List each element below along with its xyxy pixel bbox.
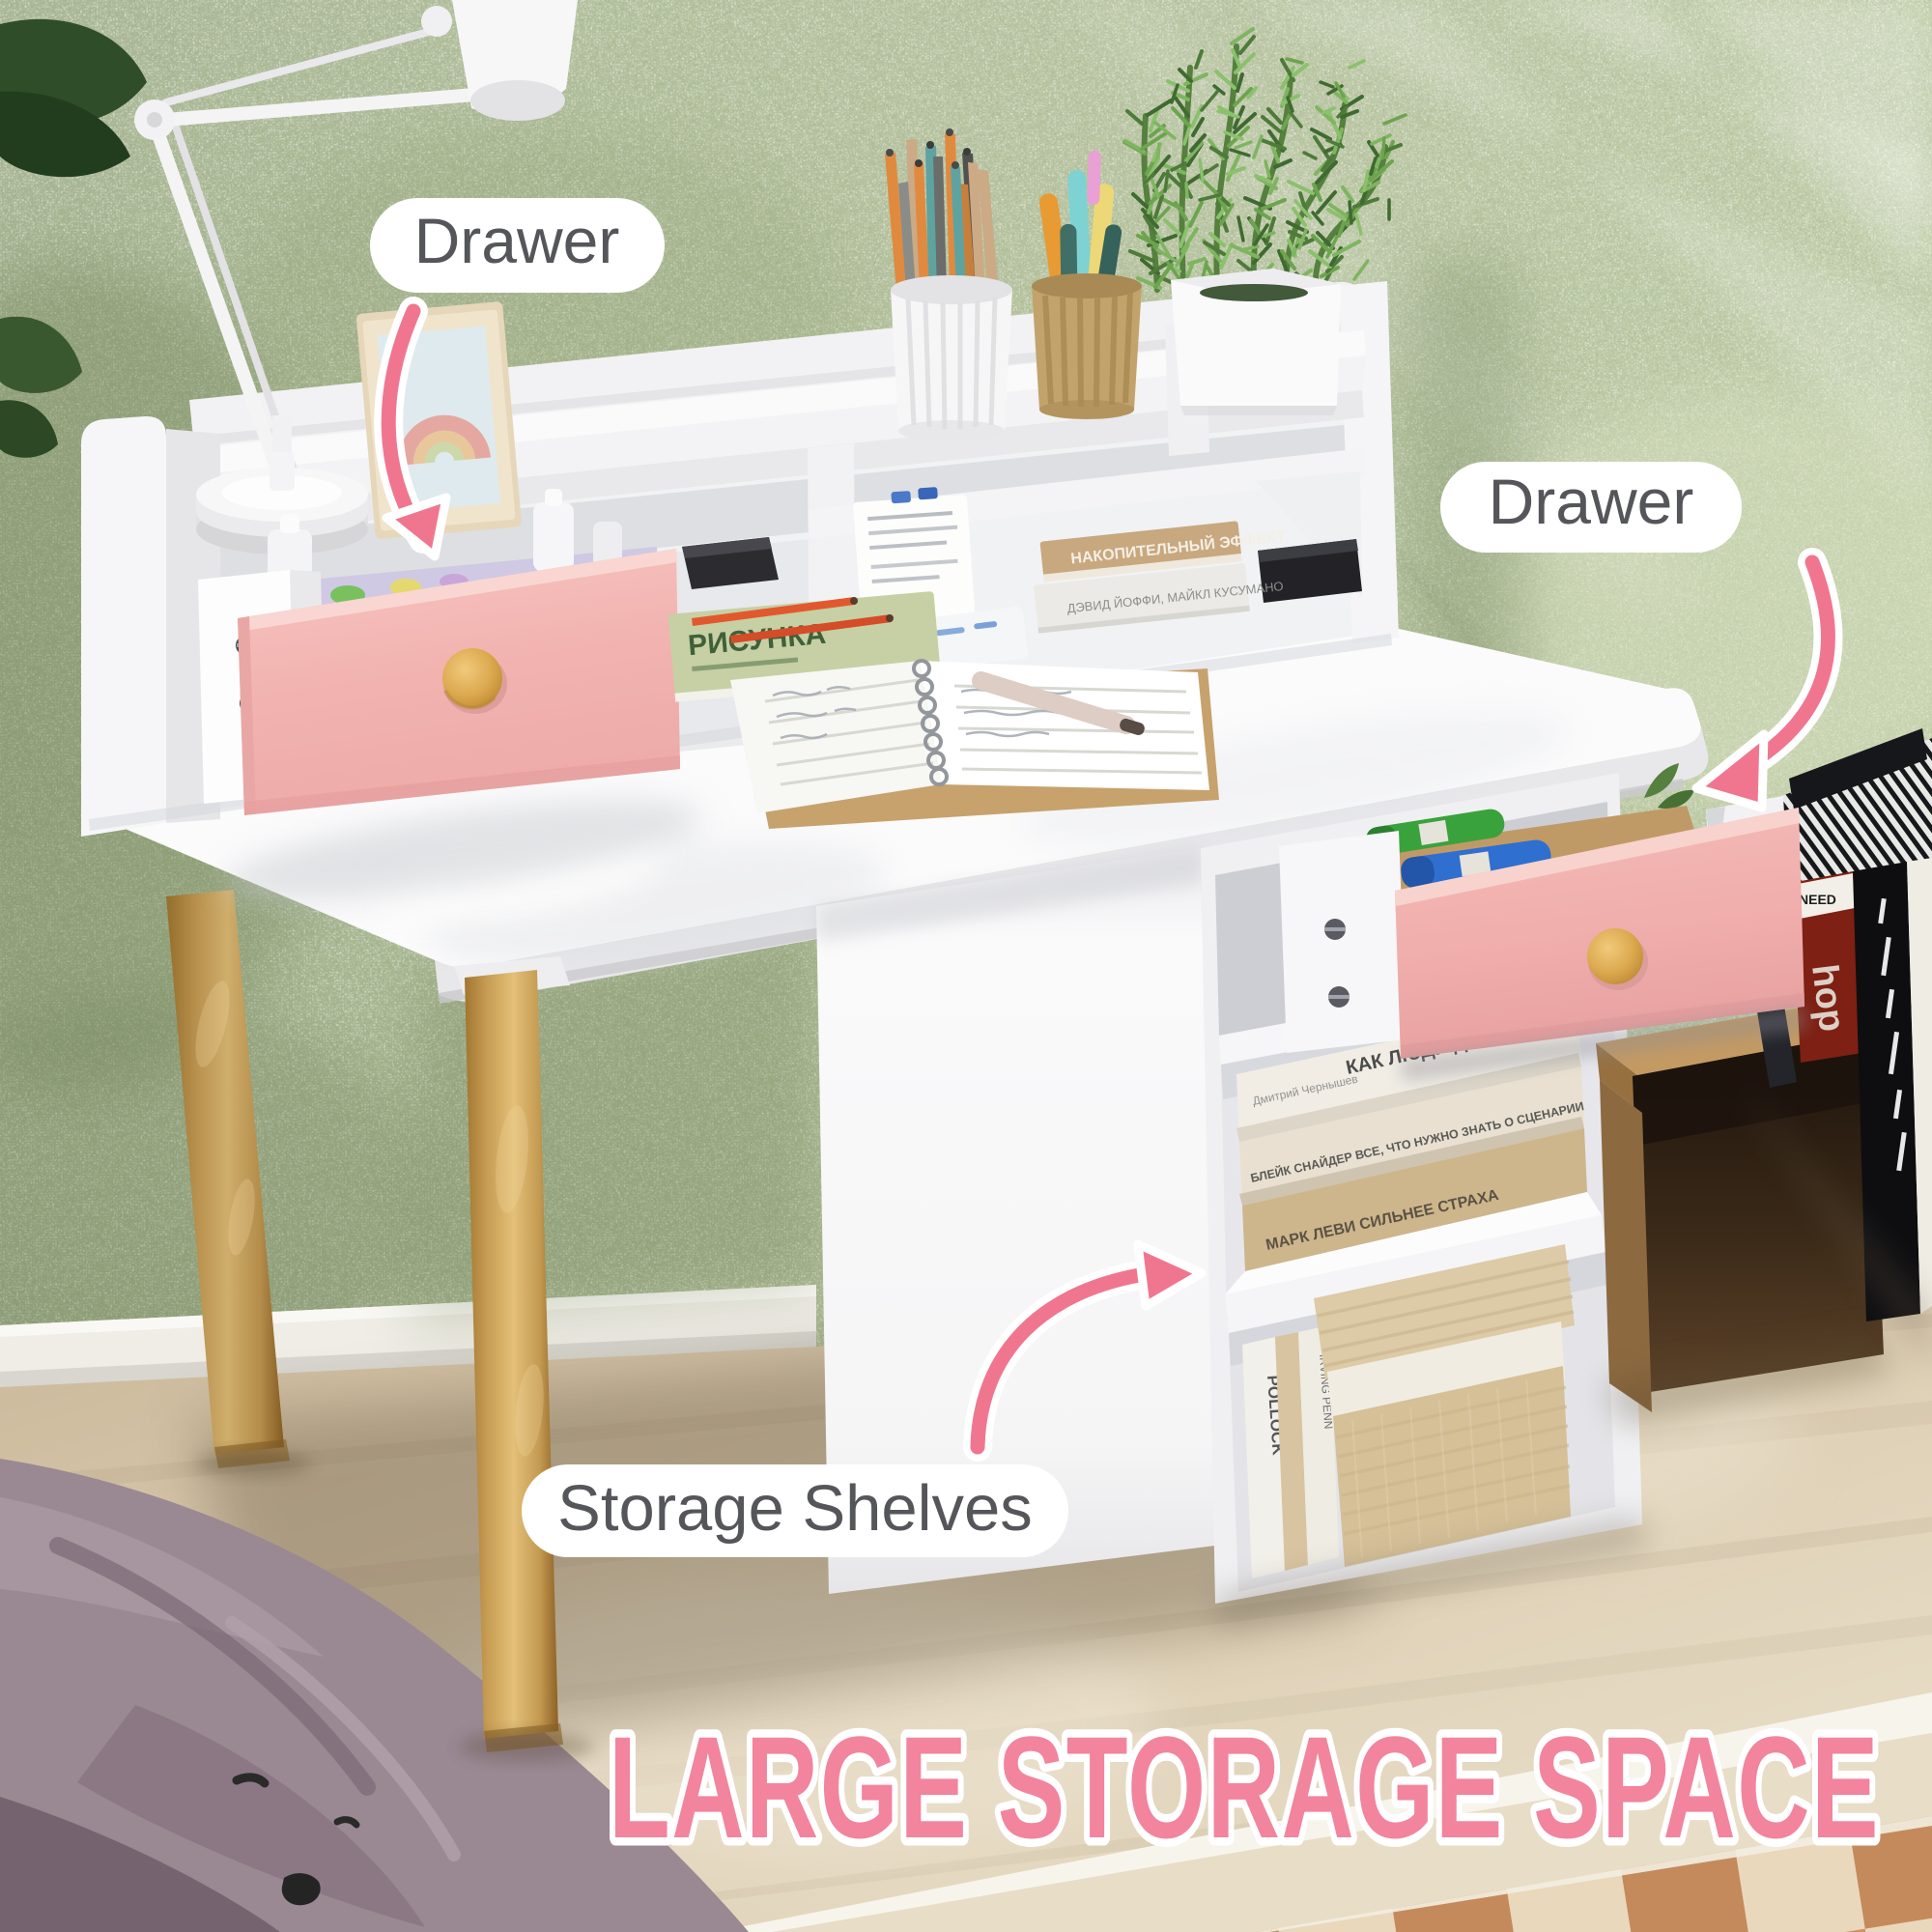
svg-text:Drawer: Drawer: [1489, 466, 1694, 537]
svg-text:NEED: NEED: [1799, 892, 1836, 907]
svg-text:Drawer: Drawer: [414, 205, 620, 276]
svg-text:Storage Shelves: Storage Shelves: [557, 1472, 1033, 1545]
svg-text:hop: hop: [1804, 962, 1852, 1034]
svg-text:LARGE STORAGE SPACE: LARGE STORAGE SPACE: [609, 1706, 1880, 1868]
